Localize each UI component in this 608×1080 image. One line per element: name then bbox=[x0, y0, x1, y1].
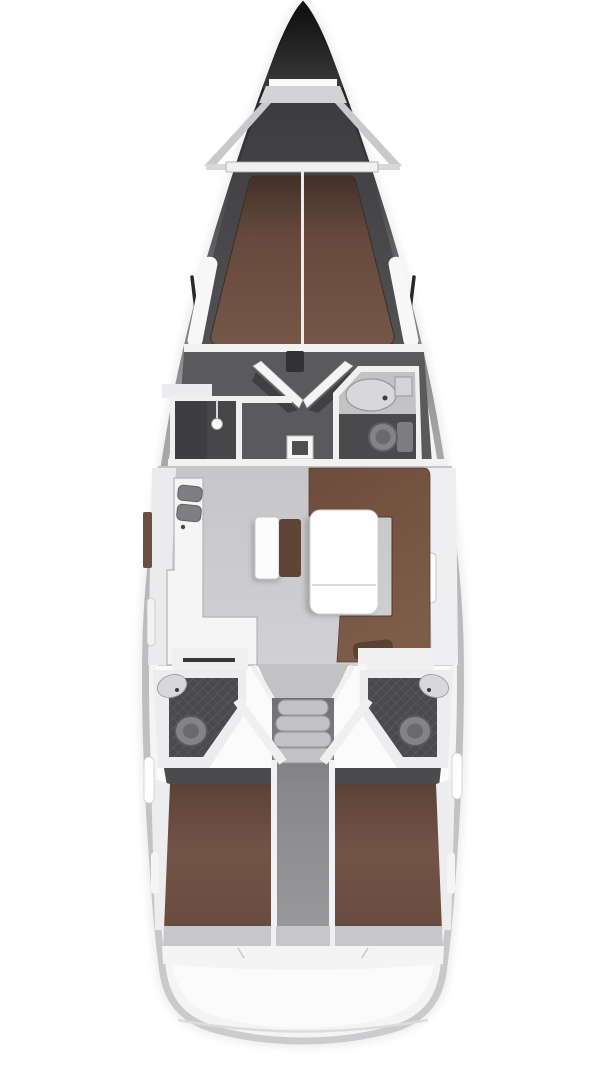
panel-through-port bbox=[271, 926, 276, 948]
forward-head-sink bbox=[346, 379, 396, 411]
wardrobe-hanger bbox=[212, 419, 223, 430]
forward-head-shelf-box bbox=[395, 377, 412, 396]
aft-berth-port bbox=[163, 784, 271, 930]
step-3 bbox=[274, 732, 331, 747]
aft-cabin-port-shadow bbox=[164, 768, 271, 786]
hull-port-light-starboard bbox=[447, 852, 455, 894]
aft-head-port-faucet bbox=[175, 688, 179, 692]
panel-edge-port bbox=[271, 760, 277, 946]
forward-head-faucet bbox=[383, 396, 388, 401]
step-1 bbox=[278, 700, 328, 715]
hull-window-port bbox=[147, 598, 155, 646]
hull-window-aft-port bbox=[144, 757, 154, 803]
panel-through-starboard bbox=[330, 926, 335, 948]
galley-faucet bbox=[181, 525, 185, 529]
transom-wall bbox=[162, 946, 444, 970]
forward-head bbox=[333, 366, 422, 464]
aft-head-port-towel-bar bbox=[183, 658, 235, 662]
wardrobe-top-shelf bbox=[162, 384, 212, 398]
hull-window-brown-port bbox=[143, 512, 152, 568]
galley-sink-2 bbox=[176, 504, 202, 522]
aft-head-starboard-faucet bbox=[427, 688, 431, 692]
anchor-locker bbox=[259, 86, 347, 103]
aft-head-starboard-shelf bbox=[358, 648, 434, 670]
hull-window-aft-starboard bbox=[452, 753, 462, 799]
saloon bbox=[143, 459, 458, 666]
windlass-beam-wing-port bbox=[206, 164, 228, 170]
aft-head-starboard-toilet-bowl bbox=[407, 724, 423, 739]
forward-head-toilet-bowl bbox=[376, 430, 391, 445]
windlass-beam-wing-starboard bbox=[378, 164, 400, 170]
bench-cushion bbox=[279, 519, 301, 577]
anchor-locker-lip bbox=[269, 79, 337, 86]
aft-cabin-starboard-shadow bbox=[335, 768, 441, 786]
bench-seat bbox=[255, 517, 279, 579]
wardrobe-floor-shade bbox=[175, 401, 207, 459]
wardrobe bbox=[170, 396, 242, 464]
cockpit-floor-strip bbox=[163, 926, 443, 948]
aft-head-port-toilet-bowl bbox=[183, 724, 199, 739]
floor-plan-canvas bbox=[0, 0, 608, 1080]
step-2 bbox=[276, 716, 330, 731]
saloon-table bbox=[310, 510, 378, 614]
aft-berth-starboard bbox=[335, 784, 443, 930]
corridor-hatch bbox=[292, 441, 308, 455]
forward-head-toilet-tank bbox=[397, 422, 413, 452]
galley-sink-1 bbox=[177, 485, 202, 502]
yacht-floor-plan bbox=[0, 0, 608, 1080]
hull-port-light-port bbox=[151, 852, 159, 894]
corridor-section bbox=[162, 351, 432, 464]
entry-step bbox=[286, 351, 304, 372]
saloon-bench bbox=[252, 517, 301, 582]
forward-bulkhead bbox=[184, 344, 424, 352]
forward-berth-centerline bbox=[301, 168, 304, 345]
panel-edge-starboard bbox=[329, 760, 335, 946]
